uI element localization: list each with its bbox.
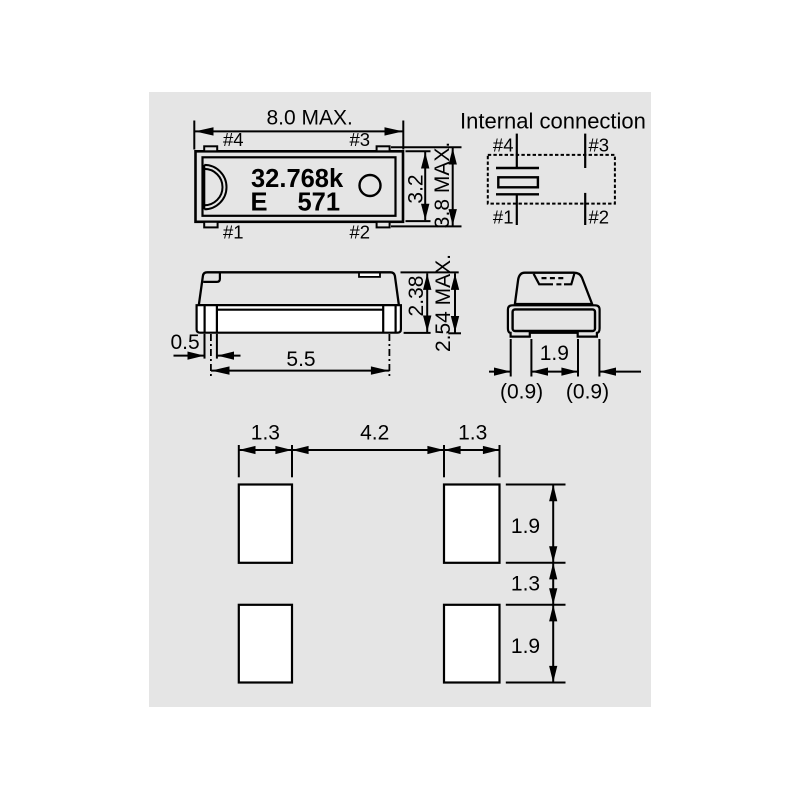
svg-text:#2: #2 <box>350 222 371 243</box>
svg-text:#4: #4 <box>493 135 514 156</box>
svg-text:571: 571 <box>298 189 341 217</box>
svg-text:2.38: 2.38 <box>405 276 428 317</box>
svg-text:1.3: 1.3 <box>511 573 540 596</box>
svg-text:1.3: 1.3 <box>251 421 280 444</box>
svg-text:1.9: 1.9 <box>540 342 569 365</box>
svg-text:#2: #2 <box>589 206 610 227</box>
svg-text:0.5: 0.5 <box>171 331 200 354</box>
svg-text:3.8 MAX.: 3.8 MAX. <box>431 142 454 228</box>
svg-text:4.2: 4.2 <box>360 421 389 444</box>
svg-text:(0.9): (0.9) <box>566 380 609 403</box>
svg-text:3.2: 3.2 <box>405 174 428 203</box>
svg-text:1.9: 1.9 <box>511 635 540 658</box>
svg-text:1.9: 1.9 <box>511 515 540 538</box>
svg-text:5.5: 5.5 <box>286 348 315 371</box>
svg-text:#3: #3 <box>589 135 610 156</box>
svg-text:Internal connection: Internal connection <box>460 108 646 133</box>
svg-text:8.0 MAX.: 8.0 MAX. <box>267 106 353 129</box>
svg-text:(0.9): (0.9) <box>500 380 543 403</box>
svg-text:2.54 MAX.: 2.54 MAX. <box>432 254 455 352</box>
svg-text:1.3: 1.3 <box>458 421 487 444</box>
svg-text:#1: #1 <box>223 222 244 243</box>
svg-text:E: E <box>251 189 268 217</box>
svg-text:#1: #1 <box>493 206 514 227</box>
